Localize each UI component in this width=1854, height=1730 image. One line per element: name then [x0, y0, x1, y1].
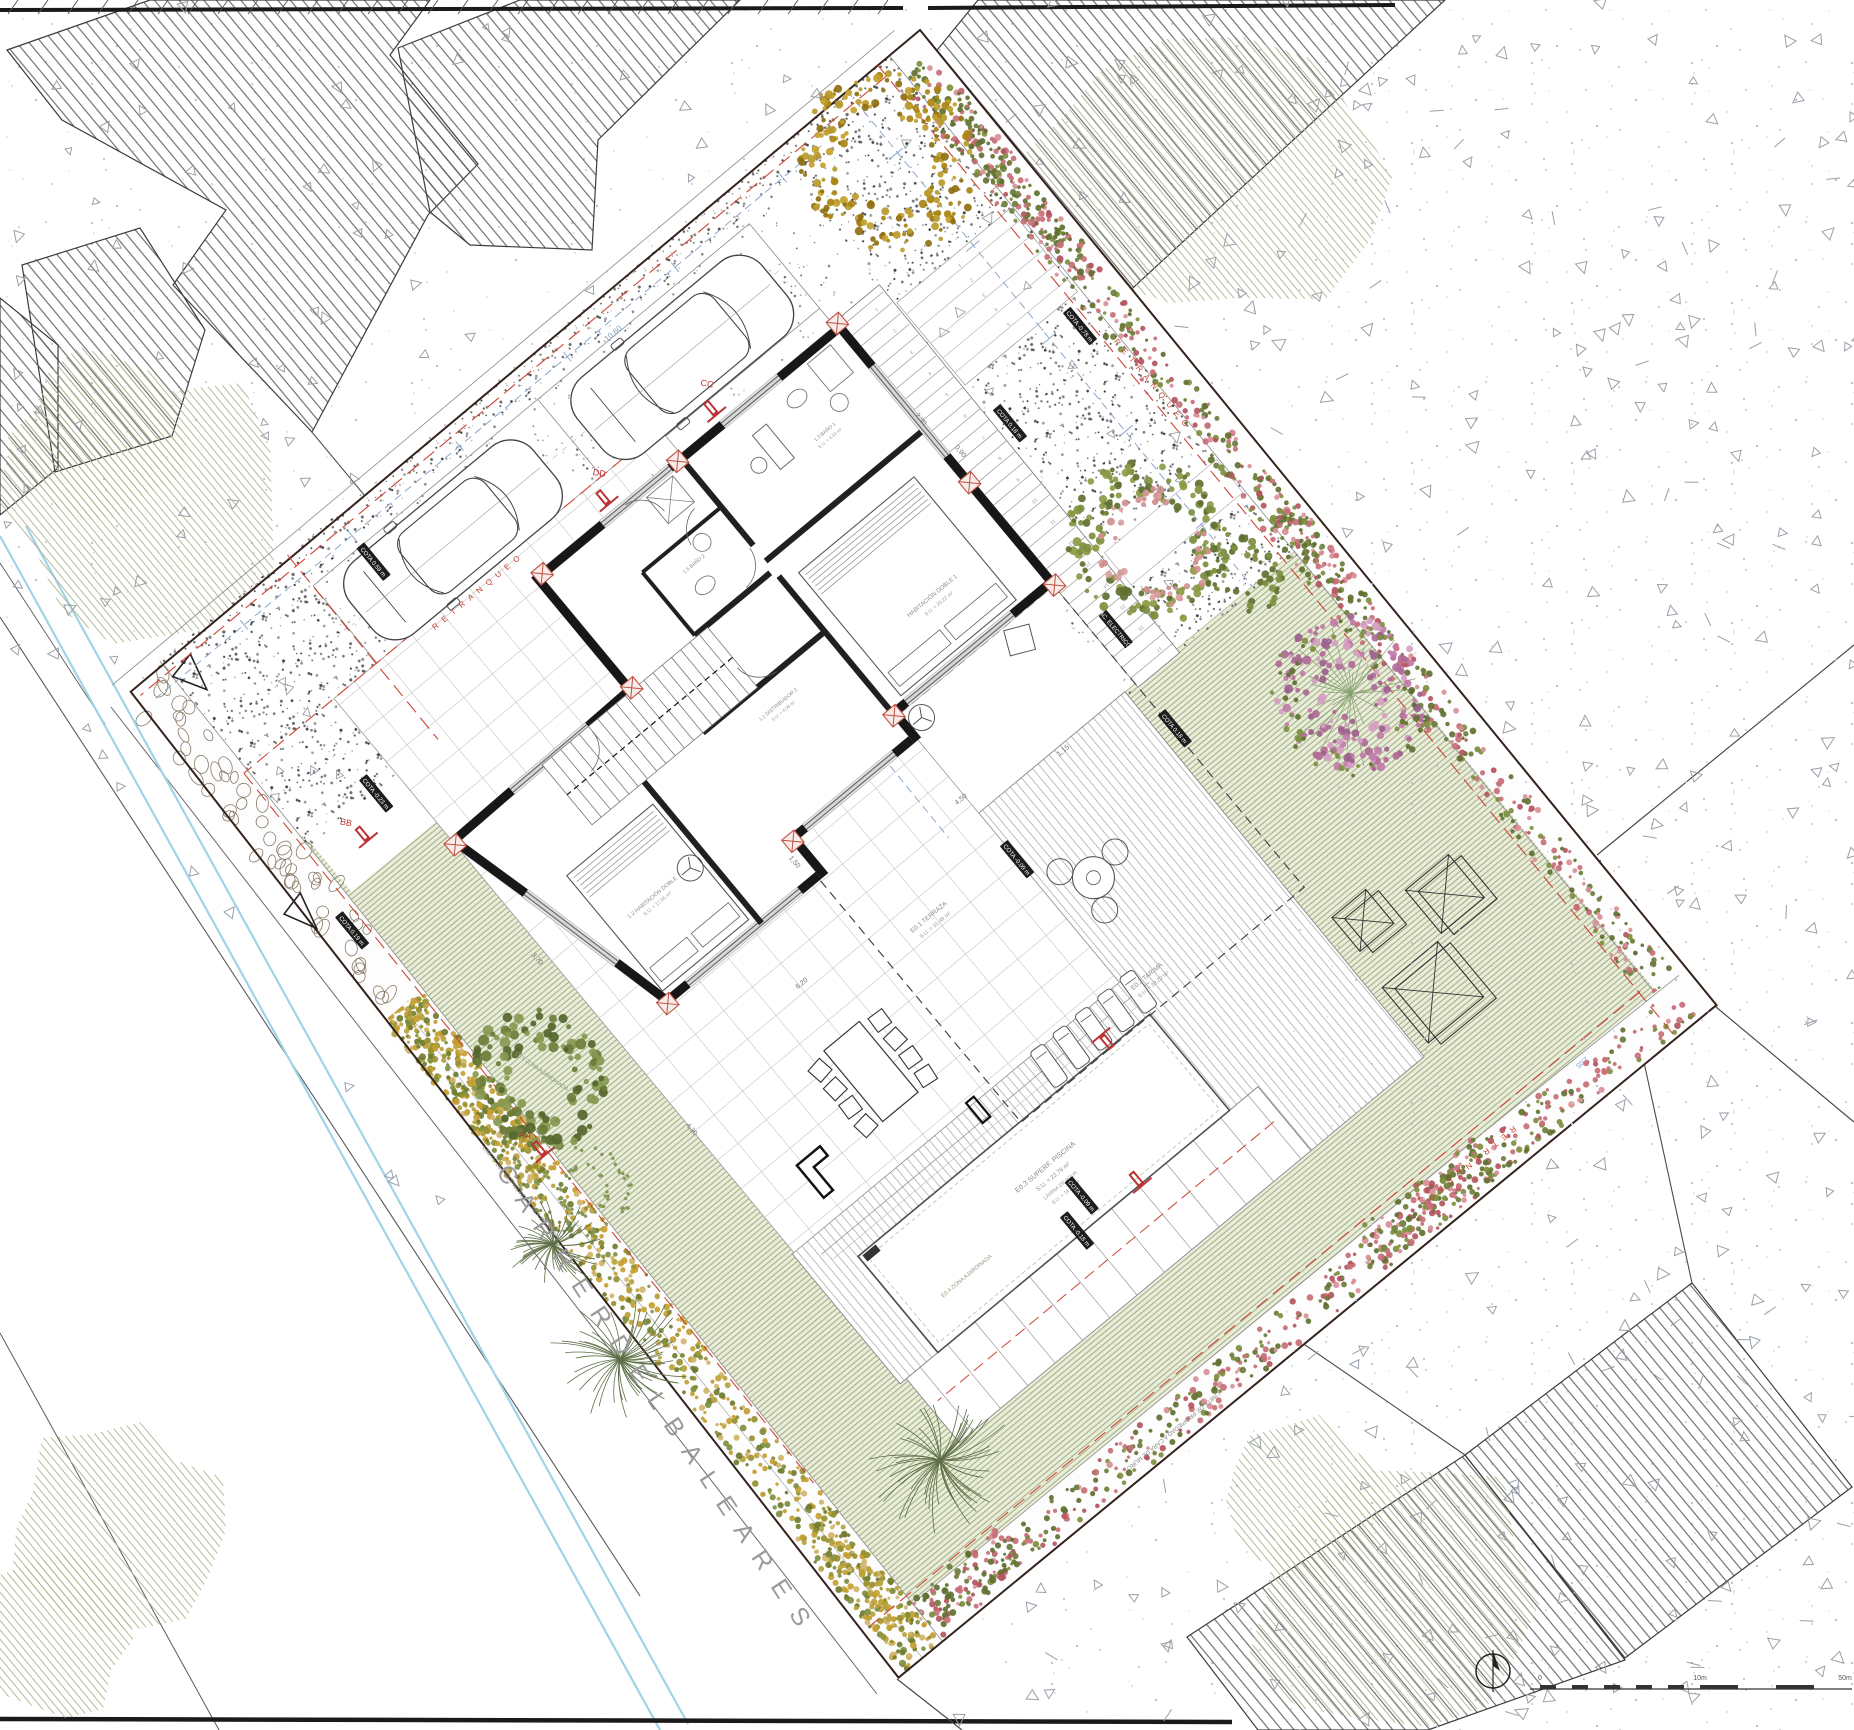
svg-text:AA: AA	[518, 1129, 532, 1141]
svg-text:10m: 10m	[1693, 1675, 1707, 1682]
svg-text:0: 0	[1538, 1675, 1542, 1682]
svg-text:BB: BB	[339, 816, 353, 828]
svg-text:50m: 50m	[1838, 1675, 1852, 1682]
